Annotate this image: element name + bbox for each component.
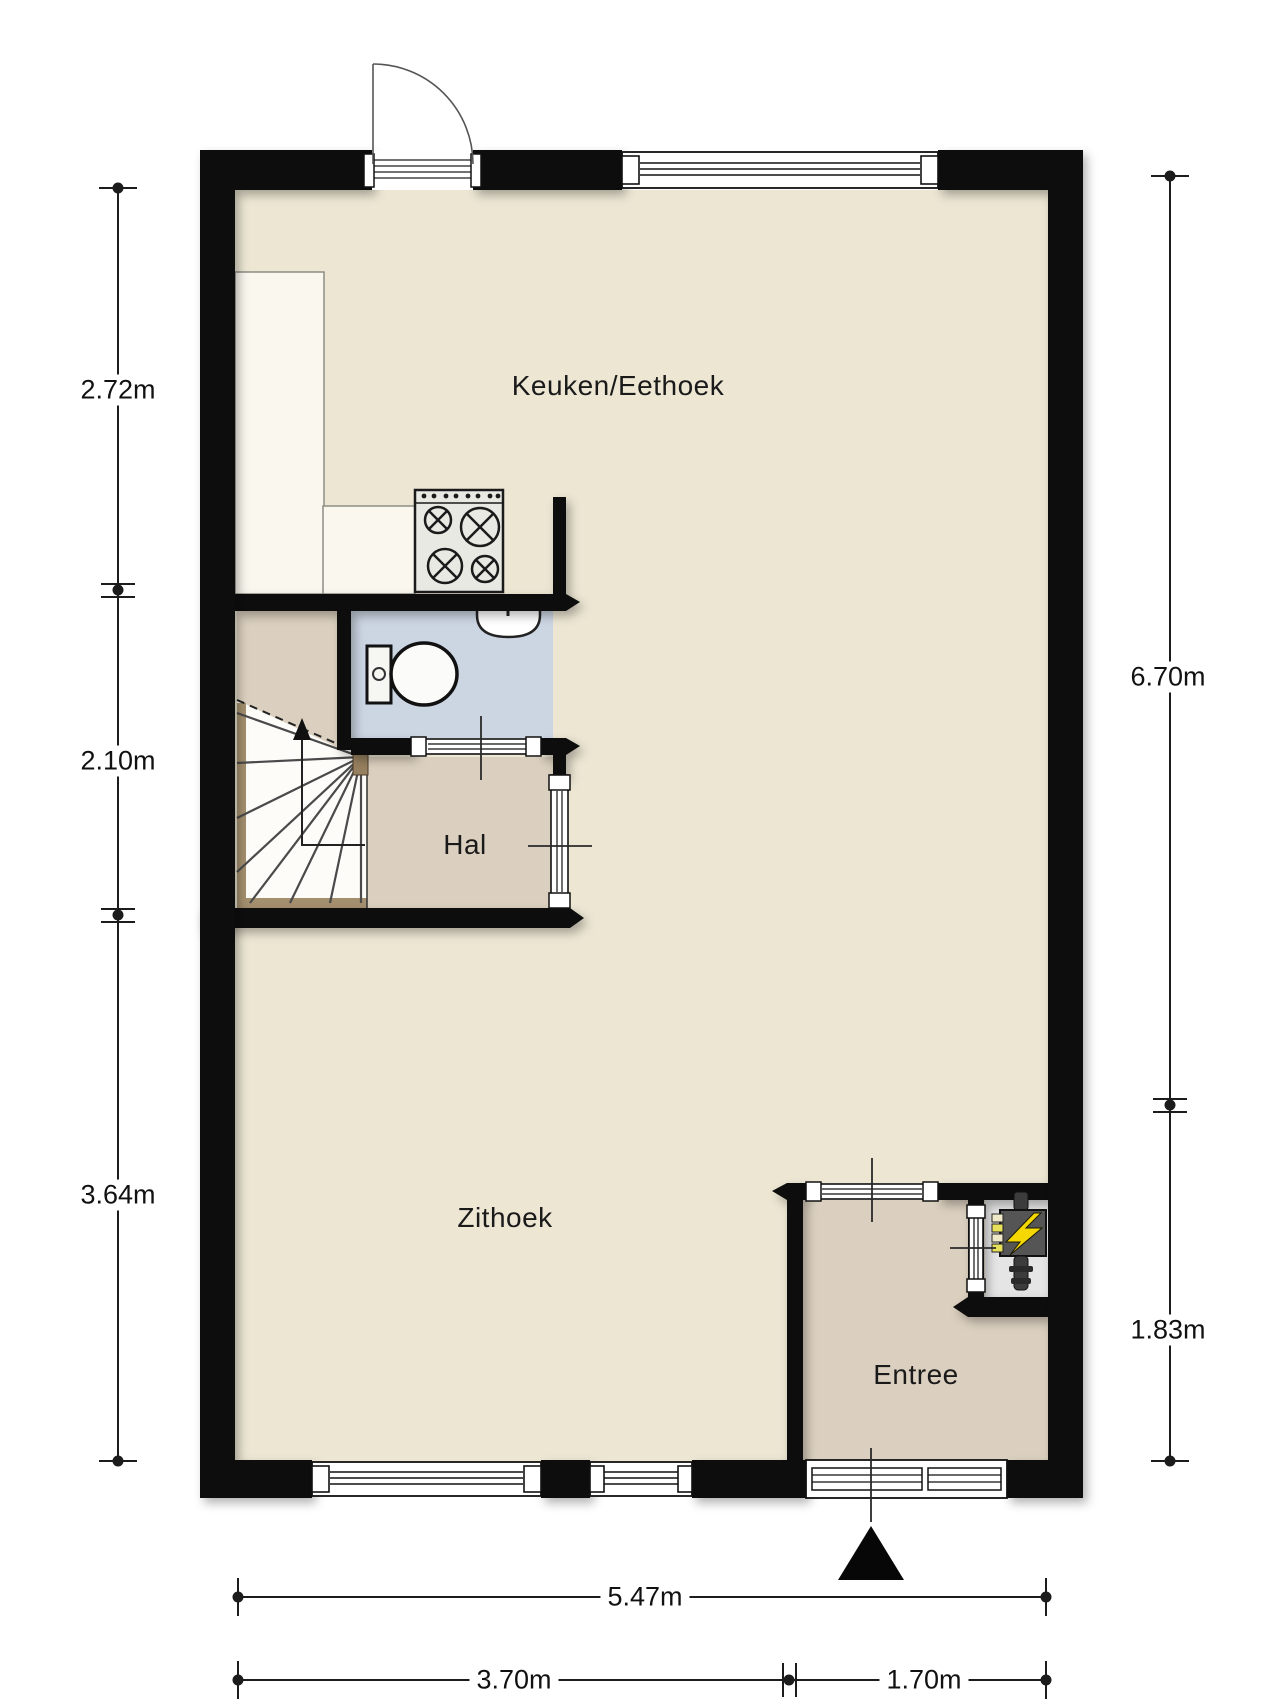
- wall-top-3: [938, 150, 1083, 190]
- floor-plan: Keuken/Eethoek Hal Zithoek Entree 2.72m …: [0, 0, 1280, 1707]
- dim-bottom-right: 1.70m: [879, 1665, 968, 1696]
- wall-stairs-toilet: [337, 611, 351, 750]
- dim-left-364: 3.64m: [73, 1180, 162, 1211]
- dim-bottom-total: 5.47m: [600, 1582, 689, 1613]
- dim-bottom-left: 3.70m: [469, 1665, 558, 1696]
- wall-entree-top-right: [938, 1183, 1048, 1200]
- wall-bottom-2: [541, 1460, 590, 1498]
- door-swing-arc: [373, 64, 473, 164]
- room-label-keuken-eethoek: Keuken/Eethoek: [512, 370, 725, 402]
- front-door: [806, 1460, 1007, 1498]
- stove-icon: [415, 490, 503, 592]
- toilet-icon: [367, 643, 457, 705]
- wall-hal-bottom: [200, 908, 570, 928]
- entrance-door-top: [364, 64, 481, 190]
- dim-left-210: 2.10m: [73, 746, 162, 777]
- wall-top-1: [200, 150, 372, 190]
- wall-bottom-1: [200, 1460, 312, 1498]
- wall-stub-stove: [553, 497, 566, 597]
- dim-left-272: 2.72m: [73, 375, 162, 406]
- floor-plan-svg: [0, 0, 1280, 1707]
- wall-closet-bottom: [968, 1297, 1048, 1317]
- stair-stringer-left: [237, 703, 246, 908]
- room-label-zithoek: Zithoek: [457, 1202, 552, 1234]
- window-bottom-mid: [590, 1462, 692, 1496]
- wall-right: [1048, 150, 1083, 1498]
- dim-right-183: 1.83m: [1123, 1315, 1212, 1346]
- wall-kitchen-bottom: [235, 594, 566, 611]
- wall-bottom-3: [692, 1460, 806, 1498]
- hal-door: [549, 775, 570, 908]
- wall-left: [200, 150, 235, 1498]
- wall-bottom-4: [1007, 1460, 1083, 1498]
- wall-toilet-bottom-left: [351, 738, 413, 755]
- entrance-marker-icon: [838, 1526, 904, 1580]
- toilet-door: [411, 737, 541, 756]
- wall-top-2: [473, 150, 622, 190]
- room-label-hal: Hal: [443, 829, 487, 861]
- stair-stringer-bottom: [237, 898, 367, 908]
- wall-entree-top-left: [787, 1183, 806, 1200]
- window-bottom-left: [312, 1462, 541, 1496]
- wall-entree-left: [787, 1183, 803, 1464]
- wall-hal-right-top: [553, 738, 566, 778]
- room-label-entree: Entree: [873, 1359, 959, 1391]
- window-top: [622, 152, 938, 188]
- dim-right-670: 6.70m: [1123, 662, 1212, 693]
